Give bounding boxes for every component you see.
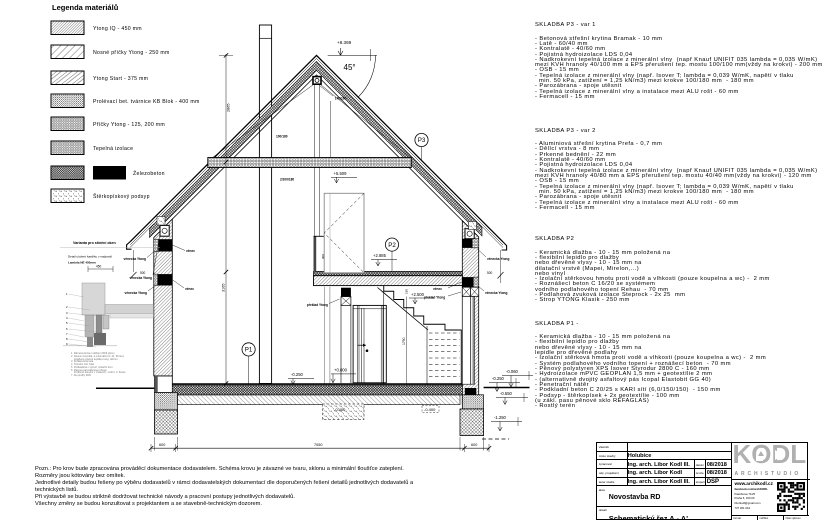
svg-text:9: 9	[66, 342, 68, 346]
svg-text:Lambda NE 450mm: Lambda NE 450mm	[68, 261, 96, 265]
svg-text:100/180: 100/180	[276, 135, 288, 139]
svg-text:+2.500: +2.500	[411, 292, 425, 297]
svg-text:1790: 1790	[402, 337, 406, 345]
svg-text:Ytong Start - 375 mm: Ytong Start - 375 mm	[93, 76, 148, 82]
svg-text:8: 8	[66, 337, 68, 341]
svg-text:900: 900	[321, 254, 325, 259]
svg-text:-0.060: -0.060	[506, 369, 519, 374]
svg-text:-1.250: -1.250	[494, 415, 507, 420]
svg-text:600: 600	[159, 443, 165, 447]
svg-text:Tepelná izolace: Tepelná izolace	[93, 146, 133, 152]
svg-text:-0.400: -0.400	[334, 407, 346, 412]
svg-text:+8.369: +8.369	[337, 40, 352, 45]
svg-text:7: 7	[66, 332, 68, 336]
svg-text:500: 500	[140, 271, 146, 275]
svg-text:věnec: věnec	[433, 287, 442, 291]
svg-text:Příčky Ytong - 125, 200 mm: Příčky Ytong - 125, 200 mm	[93, 122, 165, 128]
svg-text:věnecka Ytong: věnecka Ytong	[485, 291, 507, 295]
svg-text:3: 3	[66, 311, 68, 315]
svg-text:4: 4	[66, 316, 68, 320]
svg-text:-0.550: -0.550	[500, 391, 513, 396]
svg-text:Detail uložení kastlíku v nadp: Detail uložení kastlíku v nadpraží	[68, 255, 112, 259]
svg-text:Nosné příčky Ytong - 250 mm: Nosné příčky Ytong - 250 mm	[93, 50, 170, 56]
svg-text:500: 500	[487, 271, 493, 275]
svg-text:P2: P2	[388, 242, 396, 249]
svg-text:věnecka Ytong: věnecka Ytong	[124, 257, 146, 261]
svg-text:Štěrkopískový podsyp: Štěrkopískový podsyp	[93, 193, 150, 200]
svg-text:věnecka Ytong: věnecka Ytong	[125, 291, 147, 295]
svg-text:P3: P3	[418, 137, 426, 144]
svg-text:5: 5	[66, 321, 68, 325]
svg-text:Prolévací bet. tvárnice KB Blo: Prolévací bet. tvárnice KB Blok - 400 mm	[93, 99, 200, 105]
svg-text:+2.885: +2.885	[373, 253, 387, 258]
svg-text:věnec: věnec	[185, 287, 194, 291]
svg-text:Legenda materiálů: Legenda materiálů	[52, 3, 119, 12]
svg-text:Varianta pro stínění oken: Varianta pro stínění oken	[73, 241, 116, 245]
svg-text:věnec: věnec	[186, 249, 195, 253]
svg-text:-0.250: -0.250	[291, 372, 304, 377]
svg-text:+5.509: +5.509	[334, 171, 348, 176]
svg-text:Železobeton: Železobeton	[133, 169, 165, 177]
svg-text:překlad Ytong: překlad Ytong	[307, 303, 328, 307]
svg-text:2: 2	[66, 305, 68, 309]
svg-text:450: 450	[96, 265, 102, 269]
svg-text:-0.250: -0.250	[492, 376, 505, 381]
svg-text:2/100/180: 2/100/180	[280, 178, 294, 182]
svg-text:180: 180	[405, 289, 409, 294]
svg-text:7050: 7050	[314, 443, 322, 447]
svg-text:140/160: 140/160	[335, 97, 347, 101]
svg-text:+0.000: +0.000	[334, 368, 348, 373]
svg-text:45°: 45°	[344, 63, 356, 72]
svg-text:6: 6	[66, 327, 68, 331]
svg-text:Ytong IQ - 450 mm: Ytong IQ - 450 mm	[93, 26, 142, 32]
svg-text:1: 1	[66, 292, 68, 296]
svg-text:P1: P1	[245, 347, 253, 354]
svg-text:-0.400: -0.400	[424, 407, 436, 412]
svg-text:překlad Ytong: překlad Ytong	[424, 296, 445, 300]
svg-text:600: 600	[471, 443, 477, 447]
svg-text:věnecka Ytong: věnecka Ytong	[130, 276, 152, 280]
svg-text:3165: 3165	[222, 284, 226, 292]
svg-text:věnecka Ytong: věnecka Ytong	[487, 257, 509, 261]
